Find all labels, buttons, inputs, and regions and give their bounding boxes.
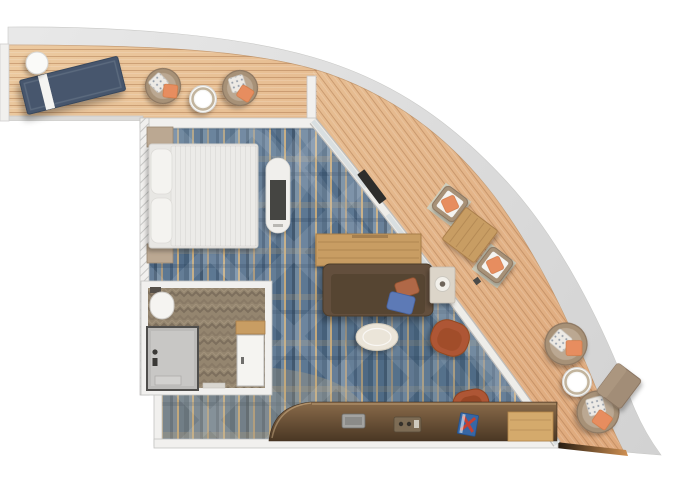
balcony-front-rail [9, 116, 143, 121]
floor-plan-canvas [0, 0, 680, 486]
shower-control [153, 358, 158, 366]
minibar-counter [269, 402, 557, 441]
shower-bench [155, 376, 181, 385]
round-table [190, 86, 217, 113]
serving-board [508, 412, 553, 441]
door-handle [241, 357, 244, 364]
amenity-tray [394, 417, 421, 432]
orange-pillow [566, 341, 582, 356]
console-tv-screen [270, 180, 286, 220]
side-table-with-lamp [430, 267, 455, 303]
coffee-table [356, 324, 398, 351]
bath-ledge [236, 321, 265, 334]
shower [147, 327, 198, 390]
balcony-divider-left [0, 44, 9, 121]
shower-head [152, 349, 157, 354]
tv-console [266, 158, 290, 233]
bed-pillow [151, 149, 172, 194]
floor-plan-svg [0, 0, 680, 486]
washbasin [150, 292, 174, 319]
balcony-divider-right [307, 76, 316, 122]
orange-pillow [163, 84, 178, 98]
bath-mat [203, 383, 225, 388]
lower-left-wall [154, 388, 162, 446]
round-table [563, 368, 592, 397]
dining-table [316, 234, 421, 266]
sofa [323, 264, 433, 316]
counter-sink [342, 414, 365, 428]
round-side-table [26, 52, 48, 74]
bed-pillow [151, 198, 172, 243]
bathroom-door [237, 335, 264, 386]
double-bed [149, 144, 258, 248]
game-box [457, 413, 478, 437]
bedroom-top-wall [140, 118, 316, 128]
bathroom [141, 281, 272, 395]
